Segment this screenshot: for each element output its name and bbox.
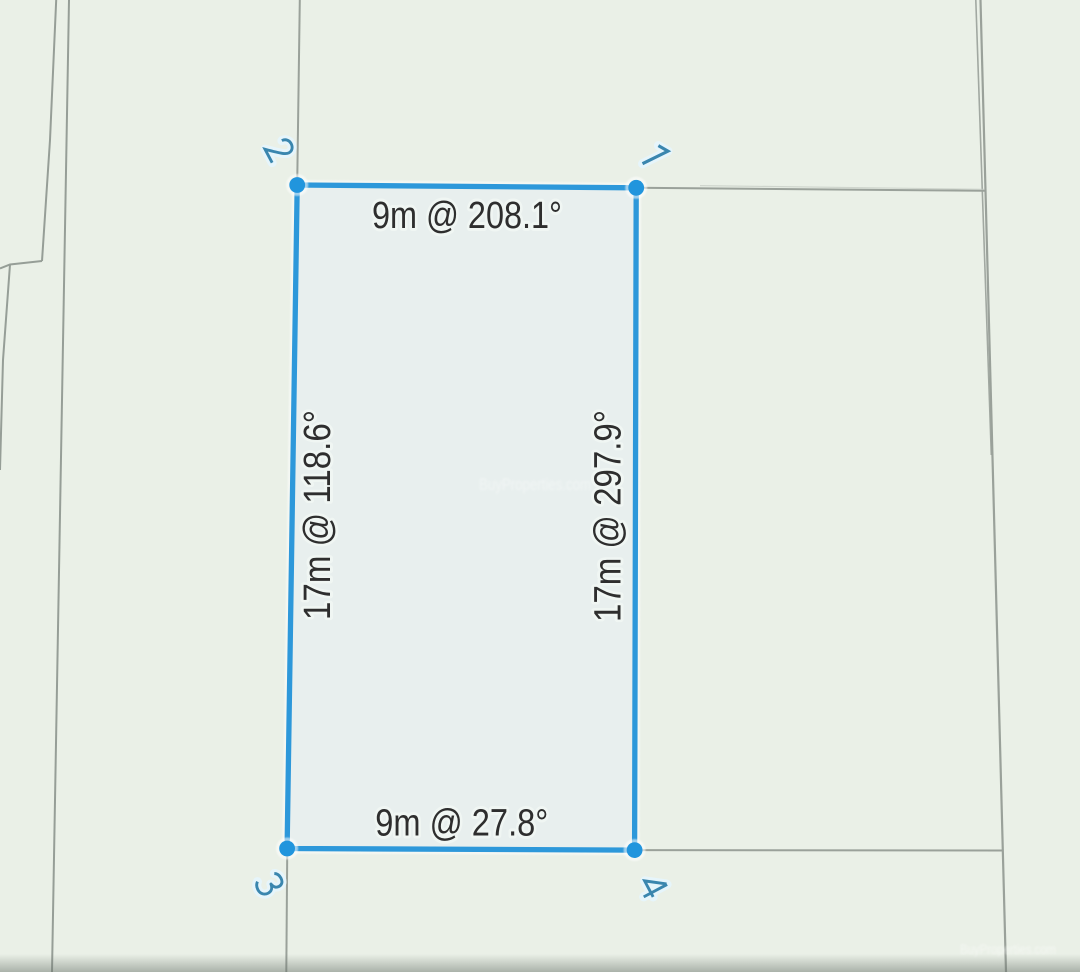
svg-text:9m @ 208.1°: 9m @ 208.1° bbox=[372, 195, 562, 237]
svg-text:9m @ 27.8°: 9m @ 27.8° bbox=[375, 803, 548, 845]
svg-text:BuyProperties.com: BuyProperties.com bbox=[479, 475, 591, 494]
svg-text:17m @ 297.9°: 17m @ 297.9° bbox=[588, 410, 630, 622]
svg-text:17m @ 118.6°: 17m @ 118.6° bbox=[297, 410, 339, 620]
